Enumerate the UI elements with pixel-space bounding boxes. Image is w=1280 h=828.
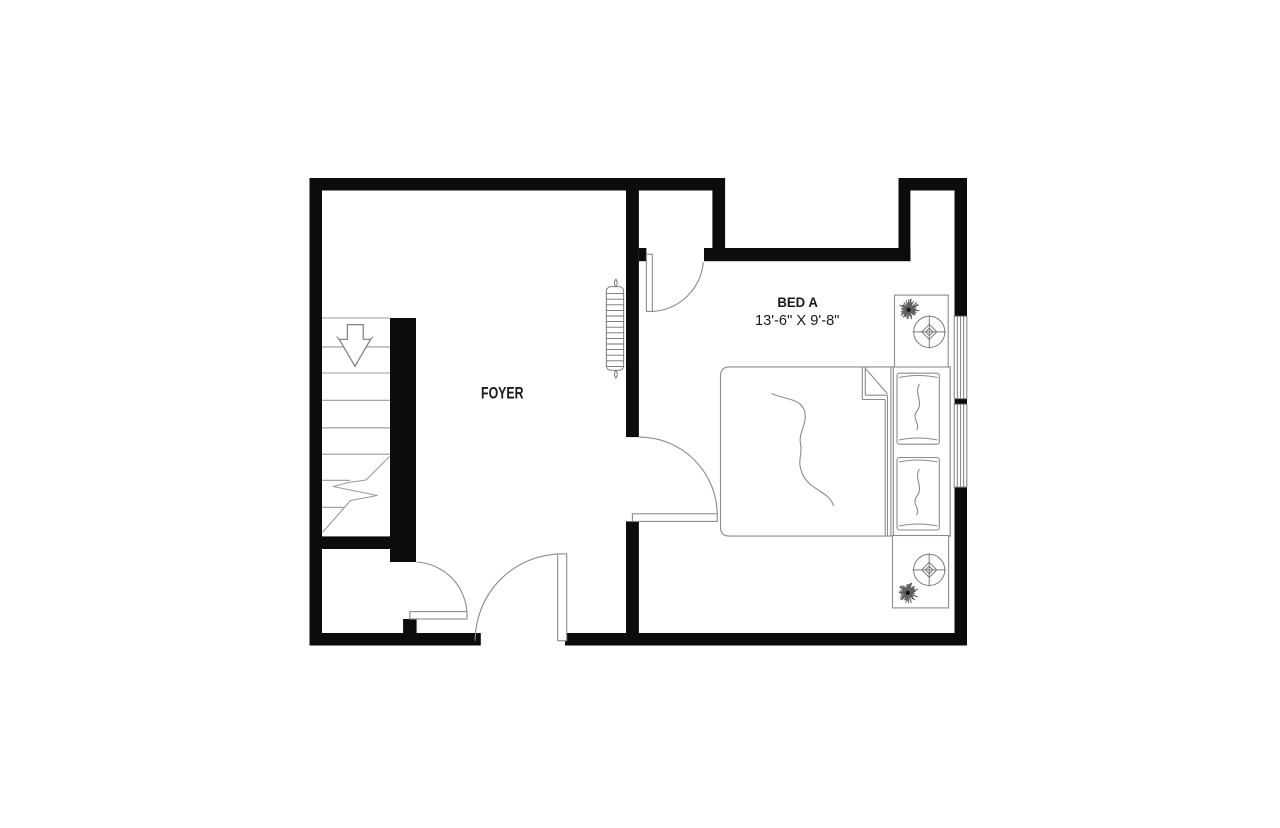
svg-text:BED A: BED A xyxy=(777,295,818,310)
svg-text:13'-6" X 9'-8": 13'-6" X 9'-8" xyxy=(755,313,840,329)
svg-text:FOYER: FOYER xyxy=(481,384,524,402)
